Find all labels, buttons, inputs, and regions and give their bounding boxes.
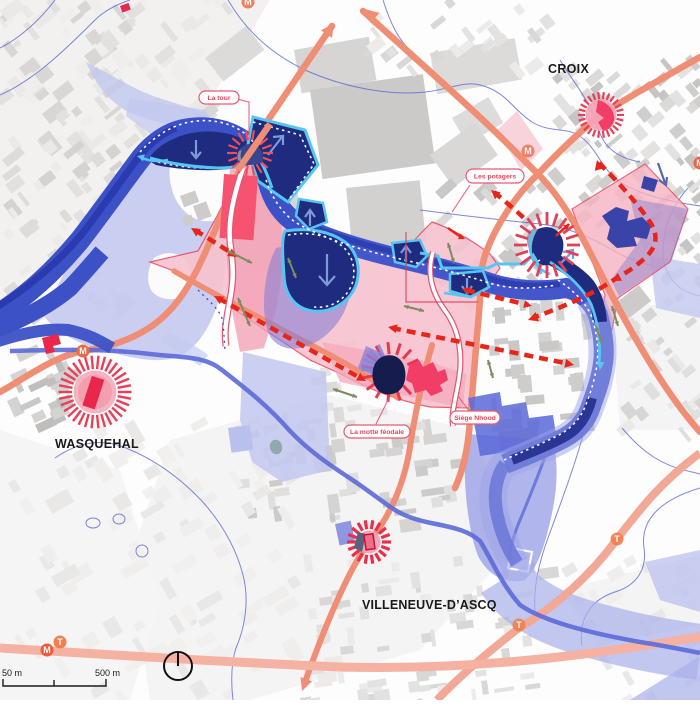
svg-text:Siège Nhood: Siège Nhood — [454, 415, 496, 422]
svg-text:T: T — [57, 637, 63, 647]
svg-text:M: M — [696, 158, 700, 168]
svg-text:CROIX: CROIX — [548, 62, 589, 76]
svg-text:M: M — [244, 0, 252, 7]
svg-text:La tour: La tour — [207, 95, 230, 102]
svg-text:M: M — [43, 645, 51, 655]
svg-text:M: M — [524, 146, 532, 156]
svg-text:WASQUEHAL: WASQUEHAL — [55, 437, 139, 451]
svg-text:50 m: 50 m — [2, 668, 22, 678]
svg-text:M: M — [79, 346, 87, 356]
svg-text:500 m: 500 m — [95, 668, 120, 678]
svg-text:La motte féodale: La motte féodale — [350, 429, 404, 436]
svg-text:T: T — [614, 534, 620, 544]
svg-text:T: T — [516, 620, 522, 630]
svg-text:VILLENEUVE-D’ASCQ: VILLENEUVE-D’ASCQ — [362, 598, 497, 612]
svg-text:Les potagers: Les potagers — [474, 173, 517, 180]
